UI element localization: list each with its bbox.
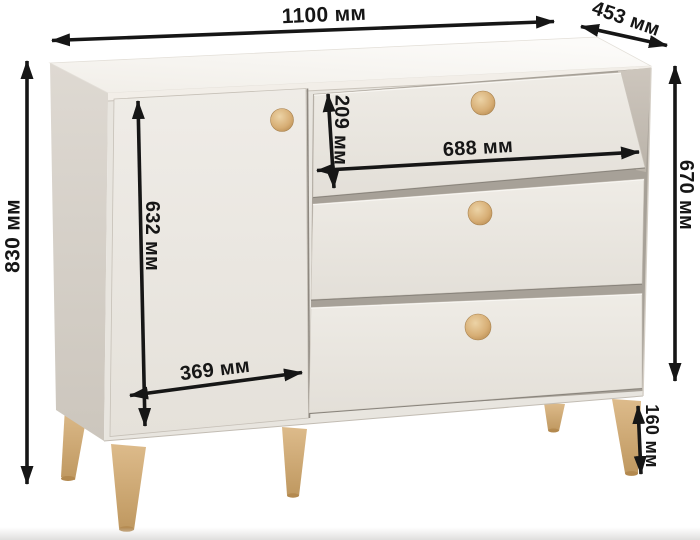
dim-label-carcass-height: 670 мм xyxy=(676,160,696,230)
dim-label-door-height: 632 мм xyxy=(142,201,162,271)
dim-label-drawers-width: 688 мм xyxy=(442,136,513,160)
dim-label-top-drawer-height: 209 мм xyxy=(330,95,351,166)
drawer-2-knob xyxy=(468,201,492,225)
dim-label-leg-height: 160 мм xyxy=(643,404,661,467)
dim-label-overall-width: 1100 мм xyxy=(281,3,366,27)
dim-arrow-leg-height xyxy=(638,406,641,474)
dim-label-overall-height: 830 мм xyxy=(3,199,24,273)
floor-shade xyxy=(0,527,700,540)
product-dimension-diagram: 1100 мм 453 мм 830 мм 632 мм 209 мм 688 … xyxy=(0,0,700,540)
leg-front-left xyxy=(111,444,146,532)
drawer-1-knob xyxy=(471,91,495,115)
leg-front-middle xyxy=(282,427,307,498)
cabinet-left-panel xyxy=(50,63,108,441)
leg-back-right xyxy=(544,403,565,433)
dresser-illustration xyxy=(0,0,700,540)
drawer-3-knob xyxy=(465,314,491,340)
door-knob xyxy=(271,109,294,132)
